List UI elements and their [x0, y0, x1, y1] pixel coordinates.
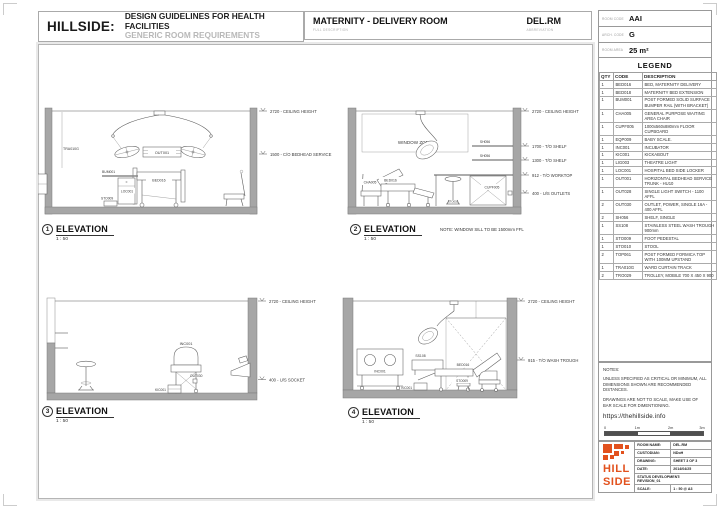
- theatre-light-head-right: [180, 144, 207, 160]
- legend-row: 1 OUT028 SINGLE LIGHT SWITCH - 1100 AFFL: [600, 188, 717, 201]
- legend-qty: 1: [600, 159, 614, 167]
- foot-pedestal-label: STO009: [456, 379, 468, 383]
- level-marker-icon: [521, 157, 529, 160]
- legend-row: 1 LIG003 THEATRE LIGHT: [600, 159, 717, 167]
- legend-qty: 1: [600, 188, 614, 201]
- legend-qty: 1: [600, 222, 614, 235]
- shelf-label: SH056: [480, 154, 490, 158]
- elevation-scale: 1 : 50: [364, 237, 422, 242]
- legend-qty: 1: [600, 175, 614, 188]
- legend-qty: 2: [600, 201, 614, 214]
- legend-code: BUM001: [614, 96, 643, 109]
- legend-code: BED016: [614, 81, 643, 89]
- level-marker-icon: [521, 172, 529, 175]
- legend-row: 2 OUT030 OUTLET, POWER, SINGLE 16A - 400…: [600, 201, 717, 214]
- titleblock-status-row: STATUS DEVELOPMENT: REVISION_01: [635, 474, 711, 485]
- legend-desc: POST FORMED SOLID SURFACE BUMPER RAIL (W…: [643, 96, 717, 109]
- elevation-3-title: 3 ELEVATION 1 : 50: [42, 406, 114, 424]
- locker-label: LOC001: [121, 189, 133, 193]
- socket-dim: 400 - U/S SOCKET: [269, 378, 306, 383]
- elevation-number-badge: 1: [42, 224, 53, 235]
- elevation-number-badge: 3: [42, 406, 53, 417]
- legend-code: INC001: [614, 143, 643, 151]
- arch-code-row: ARCH. CODE G: [598, 26, 712, 43]
- legend-qty: 1: [600, 96, 614, 109]
- room-code-label: ROOM CODE: [599, 17, 629, 21]
- tb-label: SCALE:: [635, 485, 671, 492]
- elevation-1-title: 1 ELEVATION 1 : 50: [42, 224, 114, 242]
- legend-code: LIG003: [614, 159, 643, 167]
- header-codes: ROOM CODE AAI ARCH. CODE G ROOM AREA 25 …: [598, 11, 712, 59]
- notes-paragraph: DRAWINGS ARE NOT TO SCALE, MAKE USE OF B…: [603, 397, 707, 408]
- level-marker-icon: [521, 190, 529, 193]
- elevation-title-text: ELEVATION: [56, 224, 114, 236]
- tb-value: SHEET 3 OF 3: [671, 459, 697, 463]
- level-marker-icon: [517, 357, 525, 360]
- room-code-row: ROOM CODE AAI: [598, 10, 712, 27]
- legend-row: 1 SS108 STAINLESS STEEL WASH TROUGH 900m…: [600, 222, 717, 235]
- tb-label: DRAWING:: [635, 458, 671, 465]
- room-full-caption: FULL DESCRIPTION: [313, 28, 448, 32]
- titleblock-row: DATE: 2014/04/25: [635, 466, 711, 474]
- kickabout-label: KIC001: [401, 386, 412, 390]
- legend-code: TRA010G: [614, 264, 643, 272]
- tb-label: DATE:: [635, 466, 671, 473]
- legend-desc: OUTLET, POWER, SINGLE 16A - 400 AFFL: [643, 201, 717, 214]
- logo-text-line1: HILL: [603, 463, 630, 475]
- legend-row: 1 STO009 FOOT PEDESTAL: [600, 235, 717, 243]
- titleblock-row: ROOM NAME: DEL.RM: [635, 442, 711, 450]
- legend-row: 2 TRO029 TROLLEY, MOBILE 700 X 450 X 900: [600, 272, 717, 280]
- legend-desc: 1000x560x880mm FLOOR CUPBOARD: [643, 122, 717, 135]
- legend-desc: INCUBATOR: [643, 143, 717, 151]
- theatre-light-head-left: [114, 144, 141, 160]
- room-abbr-caption: ABBREVIATION: [527, 28, 562, 32]
- legend-qty: 2: [600, 251, 614, 264]
- legend-code: STO009: [614, 235, 643, 243]
- chair-label: CHA005: [364, 181, 377, 185]
- shelf-label: SH056: [480, 140, 490, 144]
- room-code-value: AAI: [629, 14, 642, 23]
- bedhead-service-dim: 1500 - C/O BEDHEAD SERVICE: [270, 152, 332, 157]
- legend-desc: STAINLESS STEEL WASH TROUGH 900mm: [643, 222, 717, 235]
- bed-label: BED016: [457, 363, 470, 367]
- legend-desc: THEATRE LIGHT: [643, 159, 717, 167]
- legend-row: 1 STO010 STOOL: [600, 243, 717, 251]
- bar-scale-bar: [604, 431, 704, 436]
- legend-code: BED018: [614, 88, 643, 96]
- tb-value: DEL.RM: [671, 443, 687, 447]
- legend-qty: 1: [600, 243, 614, 251]
- legend-code: OUT030: [614, 201, 643, 214]
- title-block: ROOM NAME: DEL.RM CUSTODIAN: NDoH DRAWIN…: [634, 441, 712, 493]
- legend-row: 1 BED016 BED, MATERNITY DELIVERY: [600, 81, 717, 89]
- outlet-label: OUT030: [190, 374, 203, 378]
- legend-code: OUT028: [614, 188, 643, 201]
- theatre-light-head: [415, 325, 440, 348]
- legend-code: SH056: [614, 214, 643, 222]
- legend-code: CUPF005: [614, 122, 643, 135]
- legend-desc: MATERNITY BED EXTENSION: [643, 88, 717, 96]
- incubator-label: INC001: [180, 342, 193, 346]
- legend-desc: BED, MATERNITY DELIVERY: [643, 81, 717, 89]
- legend-row: 1 CUPF005 1000x560x880mm FLOOR CUPBOARD: [600, 122, 717, 135]
- level-marker-icon: [259, 108, 267, 111]
- legend-row: 1 BED018 MATERNITY BED EXTENSION: [600, 88, 717, 96]
- tb-value: 2014/04/25: [671, 467, 691, 471]
- legend-qty: 1: [600, 88, 614, 96]
- room-full-name: MATERNITY - DELIVERY ROOM: [313, 16, 448, 26]
- legend-qty: 2: [600, 214, 614, 222]
- elevation-3-drawing: INC001 OUT030 KIC001 2720 - CEILING HEIG…: [38, 285, 346, 425]
- hillside-logo: HILL SIDE: [599, 442, 634, 492]
- legend-qty: 1: [600, 135, 614, 143]
- ceiling-height-dim: 2720 - CEILING HEIGHT: [532, 109, 579, 114]
- level-marker-icon: [521, 143, 529, 146]
- legend-row: 1 KIC001 KICKABOUT: [600, 151, 717, 159]
- elevation-title-text: ELEVATION: [56, 406, 114, 418]
- legend-qty: 1: [600, 235, 614, 243]
- arch-code-value: G: [629, 30, 635, 39]
- legend-code: LOC001: [614, 167, 643, 175]
- worktop-dim: 912 - T/O WORKTOP: [532, 173, 573, 178]
- legend-desc: HOSPITAL BED SIDE LOCKER: [643, 167, 717, 175]
- legend-qty: 1: [600, 167, 614, 175]
- legend-desc: SINGLE LIGHT SWITCH - 1100 AFFL: [643, 188, 717, 201]
- ceiling-height-dim: 2720 - CEILING HEIGHT: [528, 299, 575, 304]
- notes-paragraph: UNLESS SPECIFIED AS CRITICAL OR MINIMUM,…: [603, 376, 707, 393]
- legend-code: TRO029: [614, 272, 643, 280]
- kickabout-label: KIC001: [155, 388, 166, 392]
- legend-table: QTY CODE DESCRIPTION 1 BED016 BED, MATER…: [599, 72, 717, 280]
- bedhead-trunk-label: OUT001: [155, 151, 169, 155]
- room-area-value: 25 m²: [629, 46, 649, 55]
- legend-qty: 1: [600, 109, 614, 122]
- bar-scale-tick: 3m: [699, 426, 704, 430]
- wash-trough-dim: 915 - T/O WASH TROUGH: [528, 358, 578, 363]
- legend-desc: WARD CURTAIN TRACK: [643, 264, 717, 272]
- legend-code: EQP009: [614, 135, 643, 143]
- curtain-track-label: TRA010G: [63, 147, 79, 151]
- elevation-number-badge: 4: [348, 407, 359, 418]
- legend-desc: SHELF, SINGLE: [643, 214, 717, 222]
- bar-scale-tick: 1m: [635, 426, 640, 430]
- logo-box: HILL SIDE: [598, 441, 635, 493]
- legend-row: 1 LOC001 HOSPITAL BED SIDE LOCKER: [600, 167, 717, 175]
- legend-header-row: QTY CODE DESCRIPTION: [600, 73, 717, 81]
- tb-value: REVISION_01: [635, 479, 660, 483]
- legend-desc: STOOL: [643, 243, 717, 251]
- elevation-scale: 1 : 50: [56, 419, 114, 424]
- legend-desc: TROLLEY, MOBILE 700 X 450 X 900: [643, 272, 717, 280]
- elevation-2-title: 2 ELEVATION 1 : 50: [350, 224, 422, 242]
- legend-row: 2 TOP061 POST FORMED FORMICA TOP WITH 10…: [600, 251, 717, 264]
- sheet-title: DESIGN GUIDELINES FOR HEALTH FACILITIES: [125, 12, 303, 31]
- arch-code-label: ARCH. CODE: [599, 33, 629, 37]
- website-link[interactable]: https://thehillside.info: [603, 413, 707, 420]
- legend-code: KIC001: [614, 151, 643, 159]
- bar-scale-tick: 2m: [668, 426, 673, 430]
- legend-panel: LEGEND QTY CODE DESCRIPTION 1 BED016 BED…: [598, 57, 712, 362]
- notes-title: NOTES:: [603, 367, 707, 372]
- legend-col-code: CODE: [614, 73, 643, 81]
- legend-desc: KICKABOUT: [643, 151, 717, 159]
- room-abbreviation: DEL.RM: [527, 16, 562, 26]
- shelf-dim: 1300 - T/O SHELF: [532, 158, 567, 163]
- legend-code: SS108: [614, 222, 643, 235]
- ceiling-height-dim: 2720 - CEILING HEIGHT: [270, 109, 317, 114]
- level-marker-icon: [517, 298, 525, 301]
- bar-scale-tick: 0: [604, 426, 606, 430]
- tb-value: 1 : 50 @ A3: [671, 487, 692, 491]
- elevation-title-text: ELEVATION: [362, 407, 420, 419]
- legend-qty: 1: [600, 122, 614, 135]
- legend-row: 2 SH056 SHELF, SINGLE: [600, 214, 717, 222]
- legend-code: STO010: [614, 243, 643, 251]
- foot-pedestal-label: STO009: [101, 197, 113, 201]
- legend-qty: 1: [600, 264, 614, 272]
- level-marker-icon: [258, 298, 266, 301]
- legend-desc: HORIZONTAL BEDHEAD SERVICE TRUNK - HU10: [643, 175, 717, 188]
- elevation-title-text: ELEVATION: [364, 224, 422, 236]
- legend-row: 1 CHA005 GENERAL PURPOSE WAITING AREA CH…: [600, 109, 717, 122]
- trim-mark-bottom-left-icon: [3, 494, 17, 506]
- legend-row: 1 INC001 INCUBATOR: [600, 143, 717, 151]
- trim-mark-top-left-icon: [3, 3, 17, 15]
- bar-scale: 0 1m 2m 3m: [604, 426, 704, 436]
- bumper-rail-label: BUM001: [102, 170, 115, 174]
- wash-trough-label: SS108: [415, 354, 425, 358]
- legend-desc: FOOT PEDESTAL: [643, 235, 717, 243]
- window-sill-note: NOTE: WINDOW SILL TO BE 1500mm FFL: [440, 227, 524, 232]
- elevation-4-title: 4 ELEVATION 1 : 50: [348, 407, 420, 425]
- cupboard-label: CUPF005: [485, 186, 500, 190]
- bed-label: BED016: [152, 178, 165, 182]
- legend-row: 1 TRA010G WARD CURTAIN TRACK: [600, 264, 717, 272]
- sheet-subtitle: GENERIC ROOM REQUIREMENTS: [125, 31, 303, 41]
- shelf-dim: 1700 - T/O SHELF: [532, 144, 567, 149]
- legend-qty: 1: [600, 81, 614, 89]
- legend-code: OUT001: [614, 175, 643, 188]
- trim-mark-bottom-right-icon: [703, 494, 717, 506]
- legend-col-qty: QTY: [600, 73, 614, 81]
- legend-desc: GENERAL PURPOSE WAITING AREA CHAIR: [643, 109, 717, 122]
- stool-label: STO010: [448, 200, 459, 204]
- legend-code: CHA005: [614, 109, 643, 122]
- outlets-dim: 400 - U/S OUTLETS: [532, 191, 570, 196]
- legend-col-desc: DESCRIPTION: [643, 73, 717, 81]
- legend-row: 1 OUT001 HORIZONTAL BEDHEAD SERVICE TRUN…: [600, 175, 717, 188]
- tb-label: ROOM NAME:: [635, 442, 671, 449]
- elevation-4-drawing: INC001 SS108 BED016 STO009 KIC001 2720 -…: [340, 285, 592, 425]
- brand-name: HILLSIDE:: [39, 19, 115, 34]
- legend-qty: 1: [600, 151, 614, 159]
- logo-text-line2: SIDE: [603, 476, 631, 488]
- elevation-number-badge: 2: [350, 224, 361, 235]
- room-area-label: ROOM AREA: [599, 48, 629, 52]
- elevation-scale: 1 : 50: [56, 237, 114, 242]
- incubator-label: INC001: [374, 370, 386, 374]
- legend-desc: BABY SCALE.: [643, 135, 717, 143]
- drawing-sheet: HILLSIDE: DESIGN GUIDELINES FOR HEALTH F…: [0, 0, 720, 509]
- ceiling-height-dim: 2720 - CEILING HEIGHT: [269, 299, 316, 304]
- notes-panel: NOTES: UNLESS SPECIFIED AS CRITICAL OR M…: [598, 362, 712, 441]
- legend-row: 1 BUM001 POST FORMED SOLID SURFACE BUMPE…: [600, 96, 717, 109]
- titleblock-row: SCALE: 1 : 50 @ A3: [635, 485, 711, 492]
- legend-row: 1 EQP009 BABY SCALE.: [600, 135, 717, 143]
- level-marker-icon: [259, 151, 267, 154]
- tb-value: NDoH: [671, 451, 683, 455]
- legend-qty: 1: [600, 143, 614, 151]
- bed-label: BED016: [384, 179, 397, 183]
- level-marker-icon: [258, 377, 266, 380]
- legend-desc: POST FORMED FORMICA TOP WITH 100MM UPSTA…: [643, 251, 717, 264]
- titleblock-row: DRAWING: SHEET 3 OF 3: [635, 458, 711, 466]
- titleblock-row: CUSTODIAN: NDoH: [635, 450, 711, 458]
- level-marker-icon: [521, 108, 529, 111]
- tb-label: CUSTODIAN:: [635, 450, 671, 457]
- header-brand-cell: HILLSIDE: DESIGN GUIDELINES FOR HEALTH F…: [38, 11, 304, 42]
- legend-title: LEGEND: [599, 61, 711, 70]
- elevation-scale: 1 : 50: [362, 420, 420, 425]
- header-room-cell: MATERNITY - DELIVERY ROOM FULL DESCRIPTI…: [304, 11, 592, 40]
- legend-qty: 2: [600, 272, 614, 280]
- legend-code: TOP061: [614, 251, 643, 264]
